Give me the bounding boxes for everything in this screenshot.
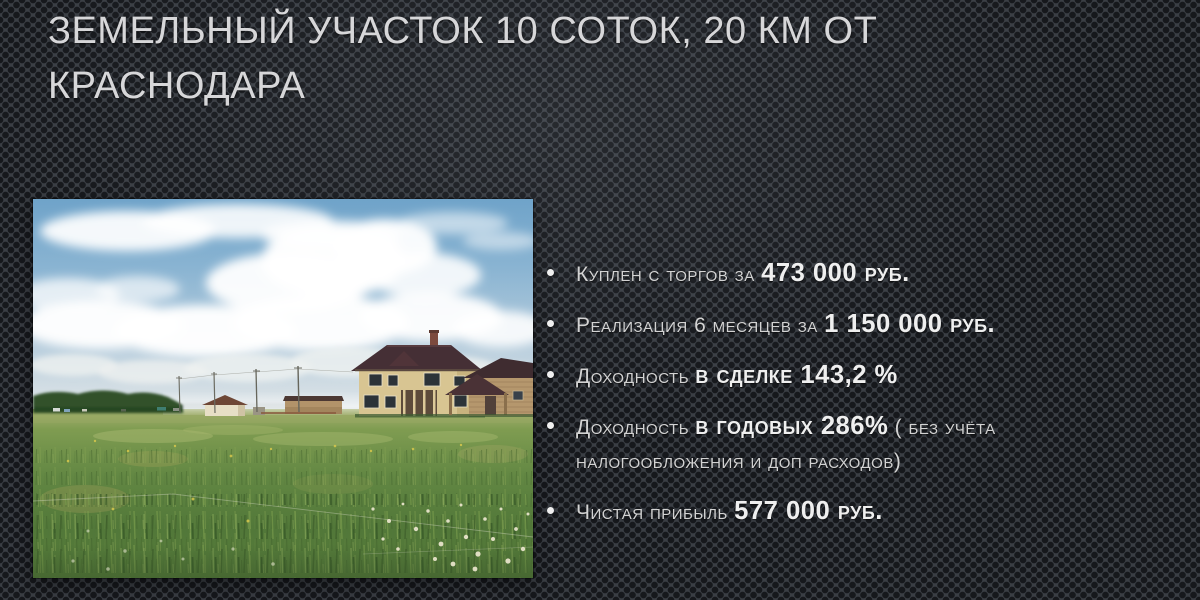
- bullet-item: Доходность в годовых 286% ( без учёта на…: [545, 409, 1117, 479]
- slide: { "slide": { "title": "Земельный участок…: [0, 0, 1200, 600]
- bullet-bold-text: в сделке 143,2 %: [695, 361, 897, 389]
- bullet-bold-text: 473 000 руб.: [761, 259, 910, 287]
- property-photo-image: [33, 199, 533, 578]
- bullet-bold-text: 577 000 руб.: [734, 497, 883, 525]
- bullet-bold-text: 1 150 000 руб.: [824, 310, 995, 338]
- bullet-text: Доходность: [576, 416, 695, 439]
- bullet-bold-text: в годовых 286%: [695, 412, 888, 440]
- bullet-list: Куплен с торгов за 473 000 руб.Реализаци…: [545, 256, 1117, 545]
- slide-title: Земельный участок 10 соток, 20 км от Кра…: [48, 4, 1133, 114]
- bullet-item: Реализация 6 месяцев за 1 150 000 руб.: [545, 307, 1117, 343]
- meadow: [33, 425, 533, 578]
- clouds-upper: [33, 204, 533, 357]
- bullet-text: Доходность: [576, 365, 695, 388]
- bullet-text: Куплен с торгов за: [576, 263, 761, 286]
- bullet-text: Чистая прибыль: [576, 501, 734, 524]
- bullet-item: Доходность в сделке 143,2 %: [545, 358, 1117, 394]
- bullet-item: Чистая прибыль 577 000 руб.: [545, 494, 1117, 530]
- bullet-text: Реализация 6 месяцев за: [576, 314, 824, 337]
- property-photo: [33, 199, 533, 578]
- bullet-item: Куплен с торгов за 473 000 руб.: [545, 256, 1117, 292]
